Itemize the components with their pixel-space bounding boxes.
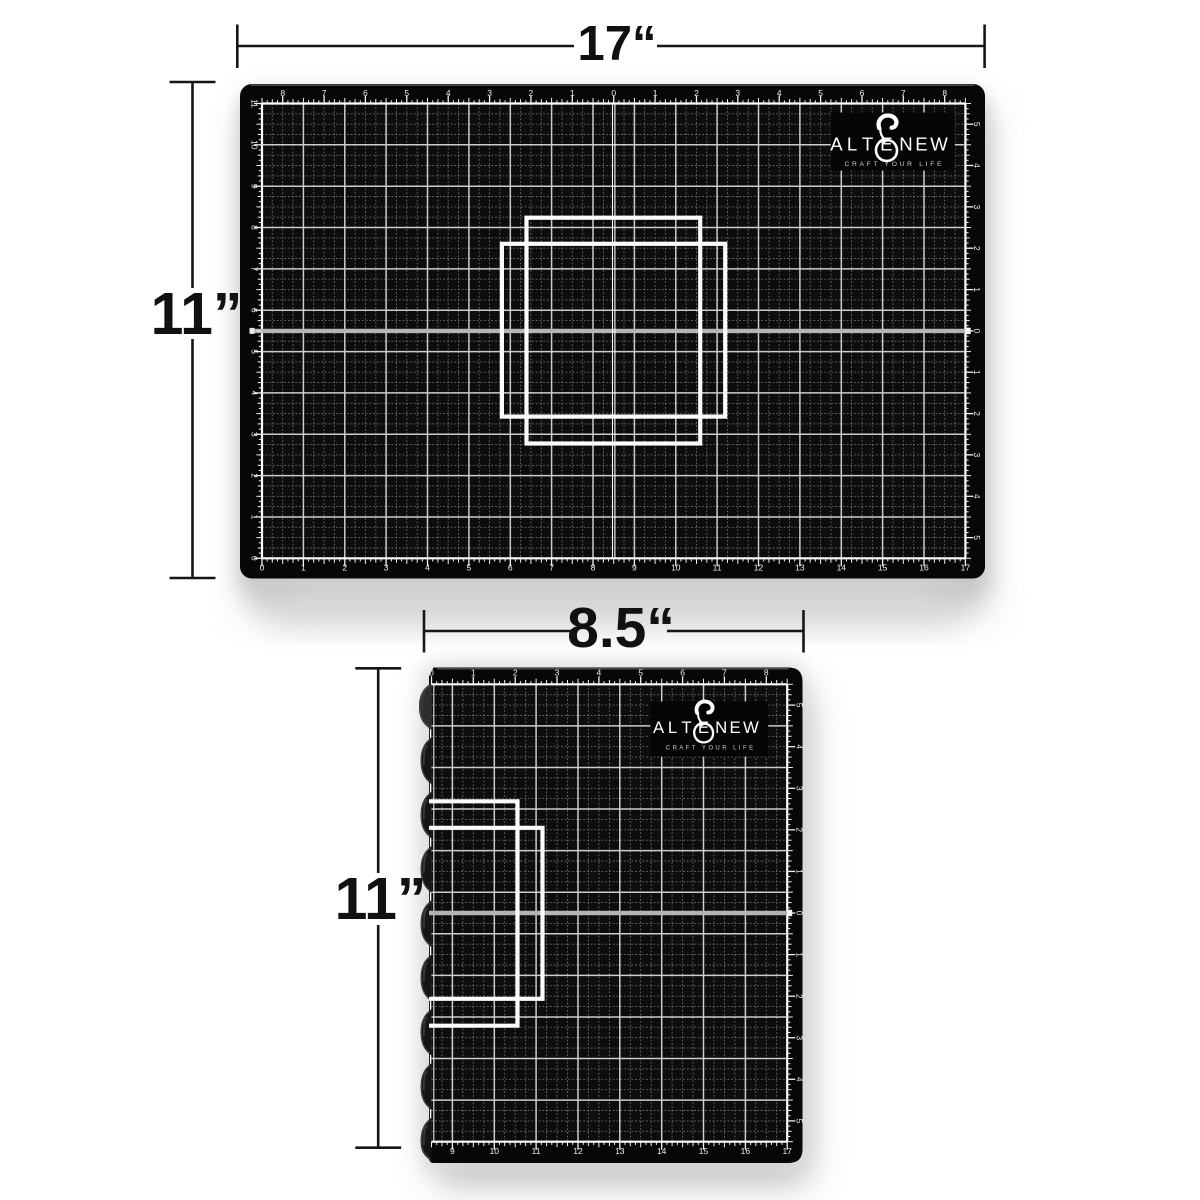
svg-text:5: 5	[795, 703, 805, 708]
svg-text:4: 4	[972, 163, 982, 168]
svg-text:E: E	[915, 134, 927, 155]
svg-text:5: 5	[467, 563, 472, 573]
svg-text:5: 5	[404, 88, 409, 98]
svg-text:17: 17	[961, 563, 971, 573]
svg-text:2: 2	[795, 994, 805, 999]
svg-text:4: 4	[795, 1077, 805, 1082]
svg-text:0: 0	[972, 329, 982, 334]
svg-text:2: 2	[972, 411, 982, 416]
svg-text:2: 2	[250, 473, 260, 478]
svg-text:E: E	[730, 718, 741, 737]
svg-text:12: 12	[573, 1146, 583, 1156]
svg-text:8: 8	[942, 88, 947, 98]
svg-text:10: 10	[671, 563, 681, 573]
svg-text:3: 3	[795, 786, 805, 791]
svg-text:8.5“: 8.5“	[567, 596, 675, 660]
svg-text:15: 15	[699, 1146, 709, 1156]
svg-text:3: 3	[972, 205, 982, 210]
svg-text:1: 1	[653, 88, 658, 98]
svg-text:A: A	[653, 718, 665, 737]
svg-text:N: N	[715, 718, 727, 737]
svg-text:9: 9	[450, 1146, 455, 1156]
svg-text:1: 1	[471, 668, 476, 678]
svg-text:7: 7	[250, 267, 260, 272]
svg-text:1: 1	[301, 563, 306, 573]
svg-text:CRAFT YOUR LIFE: CRAFT YOUR LIFE	[844, 161, 944, 168]
svg-text:4: 4	[250, 391, 260, 396]
svg-text:14: 14	[837, 563, 847, 573]
svg-text:1: 1	[972, 287, 982, 292]
svg-text:2: 2	[529, 88, 534, 98]
svg-text:9: 9	[632, 563, 637, 573]
svg-text:11: 11	[532, 1146, 541, 1156]
svg-text:3: 3	[250, 432, 260, 437]
svg-text:2: 2	[513, 668, 518, 678]
svg-text:12: 12	[754, 563, 764, 573]
svg-text:2: 2	[694, 88, 699, 98]
svg-text:11”: 11”	[151, 281, 243, 347]
svg-text:4: 4	[972, 494, 982, 499]
svg-text:L: L	[847, 134, 857, 155]
svg-text:2: 2	[972, 246, 982, 251]
svg-text:7: 7	[549, 563, 554, 573]
svg-text:11”: 11”	[335, 866, 427, 932]
svg-text:5: 5	[795, 1119, 805, 1124]
svg-text:5: 5	[972, 122, 982, 127]
svg-text:16: 16	[919, 563, 929, 573]
svg-text:7: 7	[901, 88, 906, 98]
svg-text:6: 6	[250, 308, 260, 313]
svg-text:1: 1	[250, 515, 260, 520]
svg-text:4: 4	[777, 88, 782, 98]
svg-text:7: 7	[722, 668, 727, 678]
svg-text:0: 0	[611, 88, 616, 98]
svg-text:8: 8	[280, 88, 285, 98]
svg-text:8: 8	[250, 225, 260, 230]
svg-text:16: 16	[741, 1146, 751, 1156]
svg-text:7: 7	[322, 88, 327, 98]
svg-text:1: 1	[795, 869, 805, 874]
svg-text:6: 6	[680, 668, 685, 678]
svg-text:5: 5	[250, 349, 260, 354]
svg-text:11: 11	[713, 563, 722, 573]
svg-text:1: 1	[972, 370, 982, 375]
svg-text:10: 10	[490, 1146, 500, 1156]
svg-text:0: 0	[795, 911, 805, 916]
svg-text:2: 2	[795, 827, 805, 832]
svg-text:0: 0	[260, 563, 265, 573]
svg-text:6: 6	[860, 88, 865, 98]
svg-text:3: 3	[384, 563, 389, 573]
svg-text:N: N	[899, 134, 912, 155]
svg-text:CRAFT YOUR LIFE: CRAFT YOUR LIFE	[666, 746, 756, 752]
svg-text:T: T	[862, 134, 873, 155]
svg-text:3: 3	[487, 88, 492, 98]
svg-text:5: 5	[972, 535, 982, 540]
svg-text:A: A	[830, 134, 843, 155]
svg-text:0: 0	[250, 556, 260, 561]
svg-text:3: 3	[555, 668, 560, 678]
svg-text:3: 3	[735, 88, 740, 98]
svg-text:2: 2	[342, 563, 347, 573]
svg-text:13: 13	[615, 1146, 625, 1156]
svg-text:W: W	[743, 718, 759, 737]
svg-text:9: 9	[250, 184, 260, 189]
svg-text:T: T	[681, 718, 691, 737]
svg-text:1: 1	[570, 88, 575, 98]
svg-text:3: 3	[972, 453, 982, 458]
svg-text:14: 14	[657, 1146, 667, 1156]
svg-text:1: 1	[795, 952, 805, 957]
svg-text:4: 4	[597, 668, 602, 678]
svg-text:5: 5	[818, 88, 823, 98]
svg-text:3: 3	[795, 1035, 805, 1040]
svg-text:17: 17	[782, 1146, 792, 1156]
svg-text:10: 10	[250, 140, 260, 150]
svg-text:6: 6	[363, 88, 368, 98]
svg-text:4: 4	[425, 563, 430, 573]
svg-text:6: 6	[508, 563, 513, 573]
svg-text:11: 11	[250, 99, 260, 108]
svg-text:0: 0	[429, 668, 434, 678]
svg-text:13: 13	[795, 563, 805, 573]
svg-text:5: 5	[638, 668, 643, 678]
svg-text:15: 15	[878, 563, 888, 573]
svg-text:W: W	[930, 134, 948, 155]
svg-text:L: L	[668, 718, 677, 737]
svg-text:17“: 17“	[577, 17, 656, 71]
svg-text:8: 8	[764, 668, 769, 678]
svg-text:4: 4	[446, 88, 451, 98]
svg-text:8: 8	[591, 563, 596, 573]
svg-text:4: 4	[795, 744, 805, 749]
